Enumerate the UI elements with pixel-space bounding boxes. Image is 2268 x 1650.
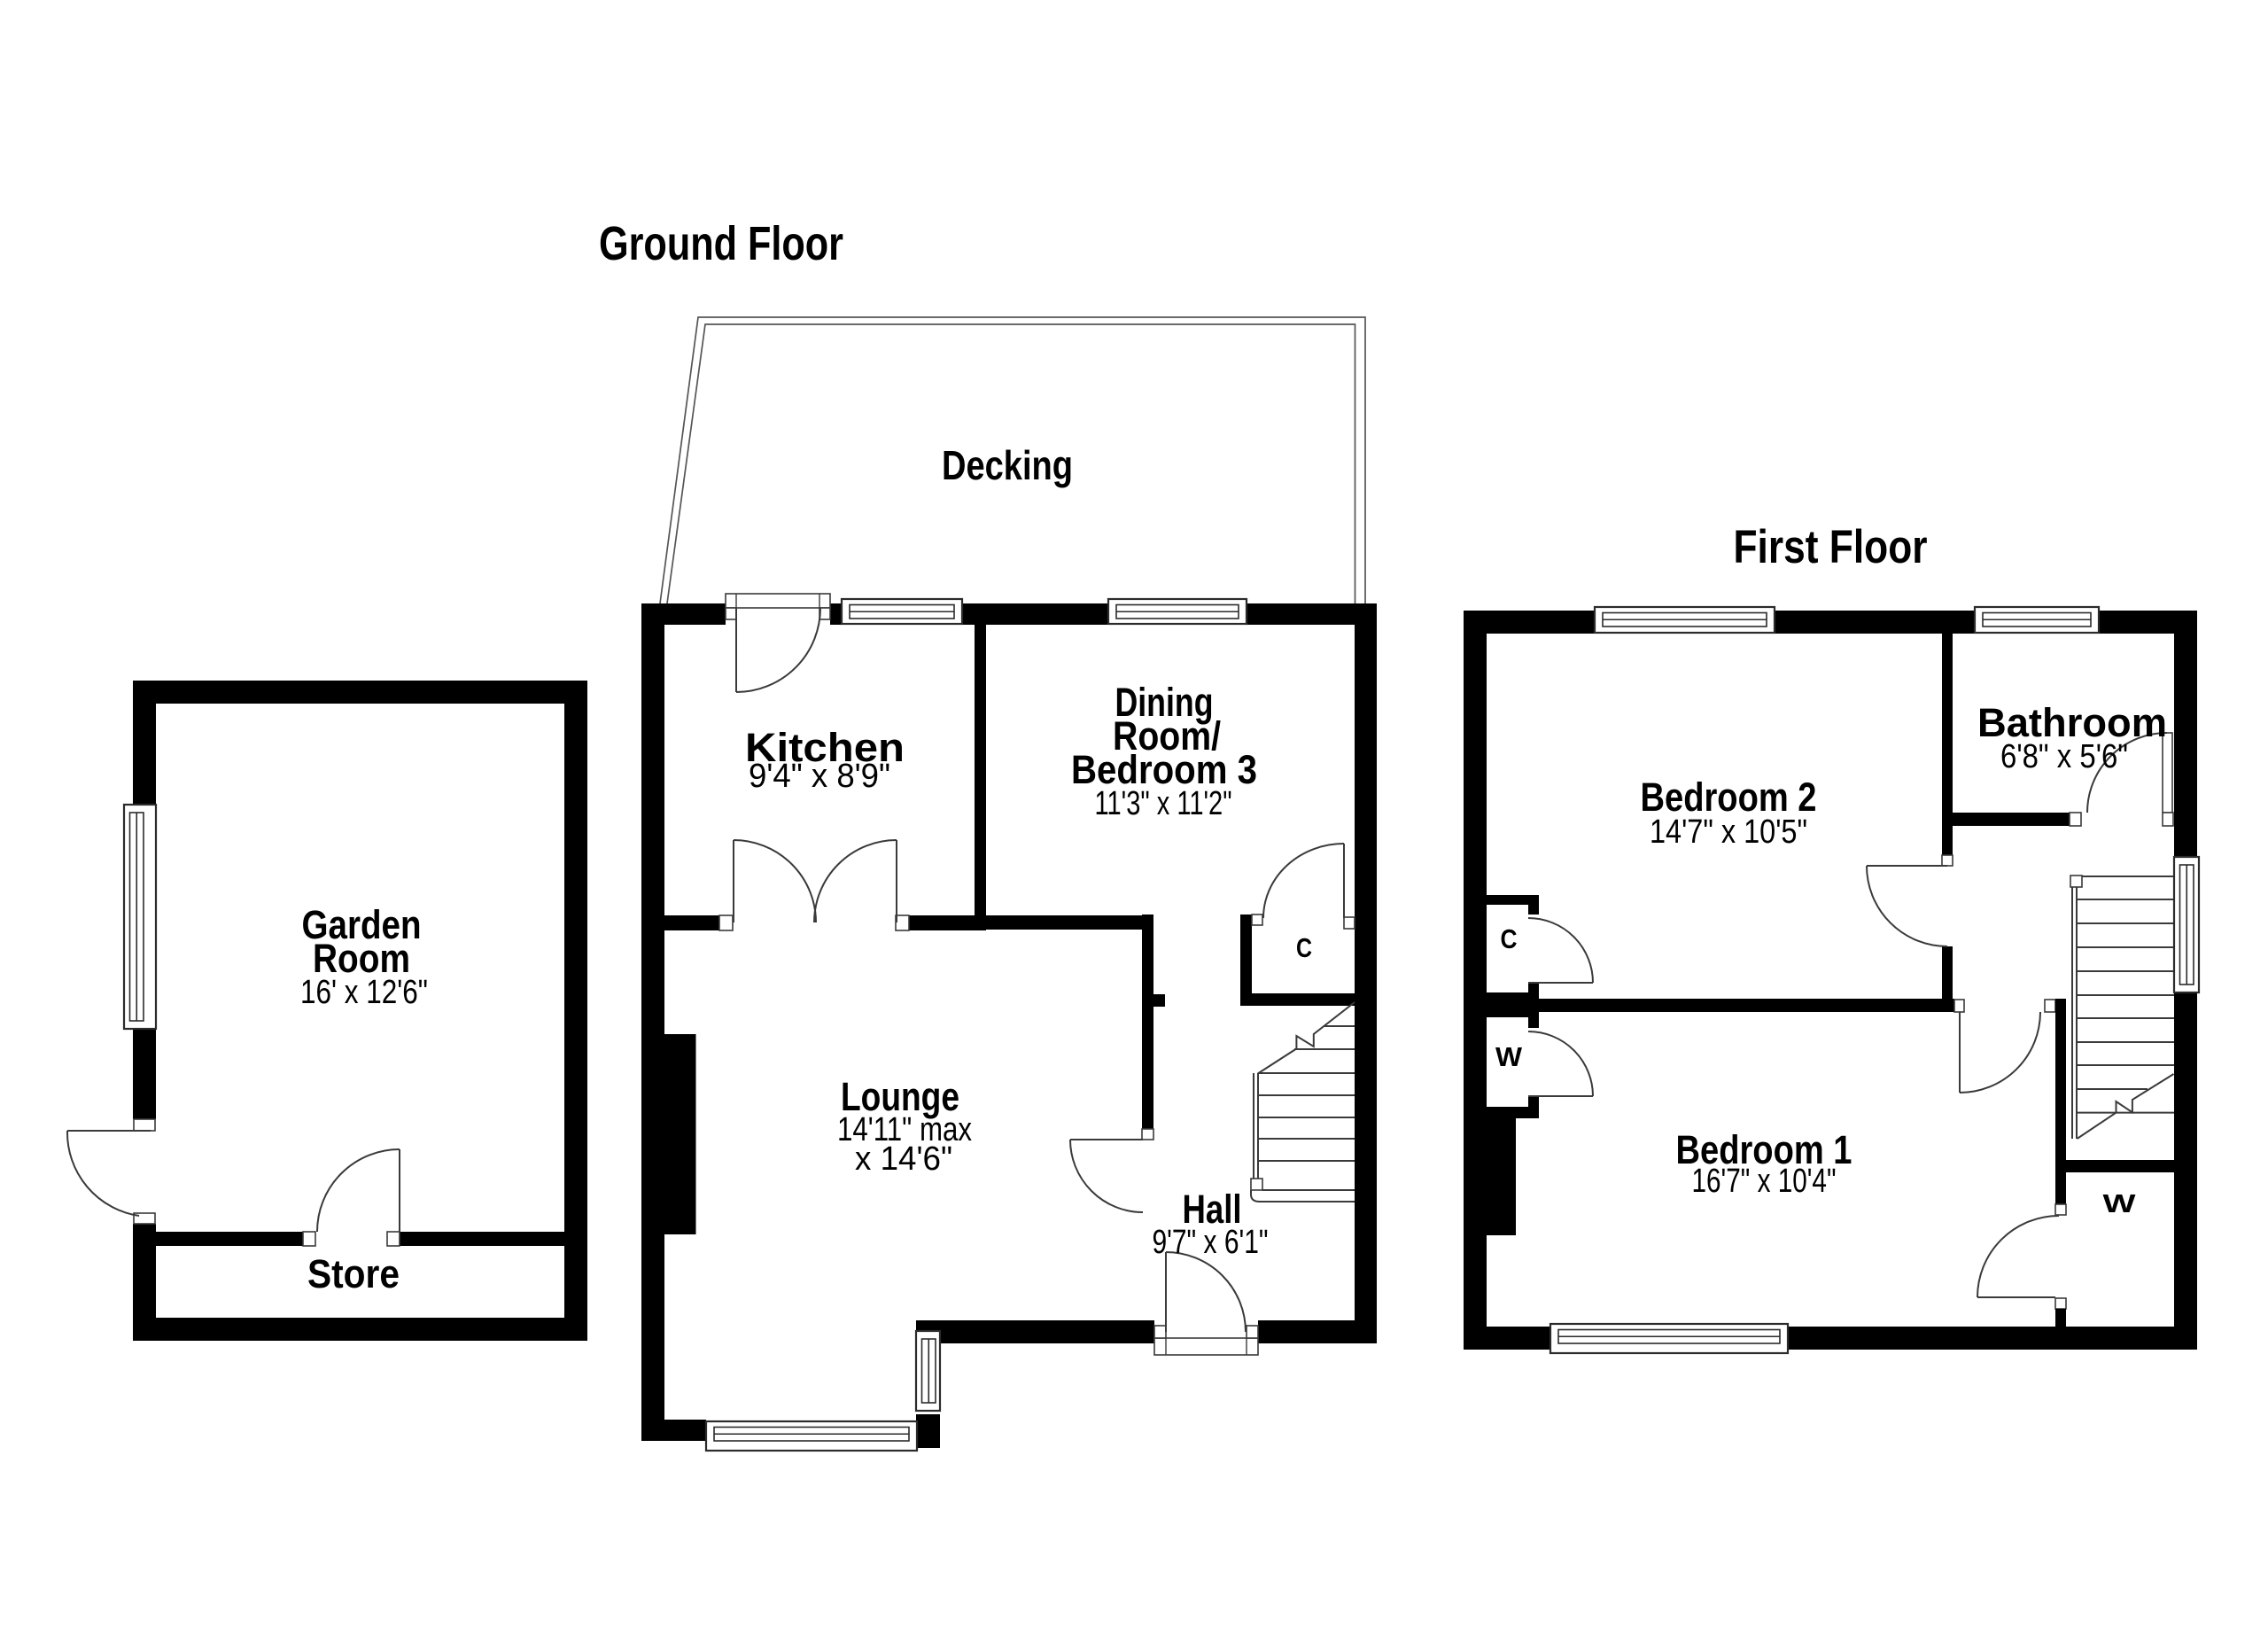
svg-text:11'3" x 11'2": 11'3" x 11'2" bbox=[1095, 785, 1232, 822]
svg-text:x 14'6": x 14'6" bbox=[855, 1140, 952, 1178]
svg-text:Store: Store bbox=[307, 1251, 400, 1296]
svg-text:16'7" x 10'4": 16'7" x 10'4" bbox=[1692, 1163, 1837, 1200]
svg-text:6'8" x 5'6": 6'8" x 5'6" bbox=[2000, 738, 2128, 775]
svg-text:Ground Floor: Ground Floor bbox=[599, 217, 843, 270]
svg-text:Decking: Decking bbox=[942, 442, 1073, 488]
svg-text:C: C bbox=[1501, 923, 1518, 954]
svg-text:14'7" x 10'5": 14'7" x 10'5" bbox=[1650, 813, 1807, 851]
svg-text:First Floor: First Floor bbox=[1734, 521, 1928, 573]
svg-text:W: W bbox=[2103, 1190, 2137, 1218]
svg-text:C: C bbox=[1296, 932, 1312, 963]
svg-text:9'4" x 8'9": 9'4" x 8'9" bbox=[749, 758, 890, 795]
svg-text:9'7" x 6'1": 9'7" x 6'1" bbox=[1153, 1224, 1269, 1261]
svg-text:16' x 12'6": 16' x 12'6" bbox=[300, 974, 428, 1011]
svg-text:W: W bbox=[1495, 1041, 1523, 1072]
